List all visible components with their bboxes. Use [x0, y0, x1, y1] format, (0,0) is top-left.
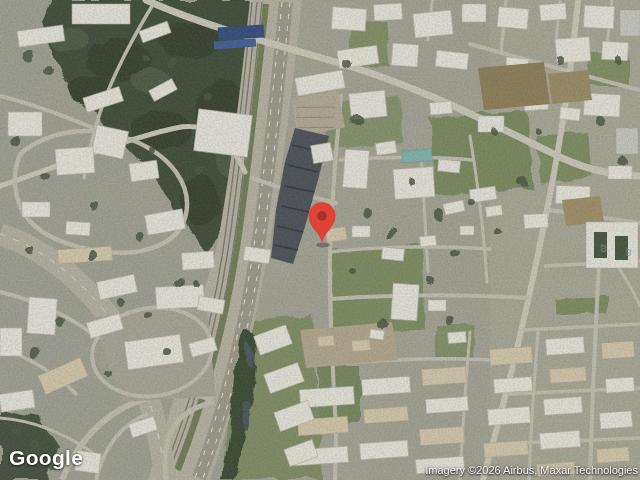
map-viewport[interactable]: 02 02 [0, 0, 640, 480]
satellite-map-image[interactable]: 02 02 [0, 0, 640, 480]
pin-inner-dot [317, 211, 327, 221]
imagery-attribution: Imagery ©2026 Airbus, Maxar Technologies [425, 464, 638, 476]
pin-shadow [316, 243, 330, 248]
imagery-grain-overlay [0, 0, 640, 480]
google-logo[interactable]: Google [9, 446, 83, 470]
